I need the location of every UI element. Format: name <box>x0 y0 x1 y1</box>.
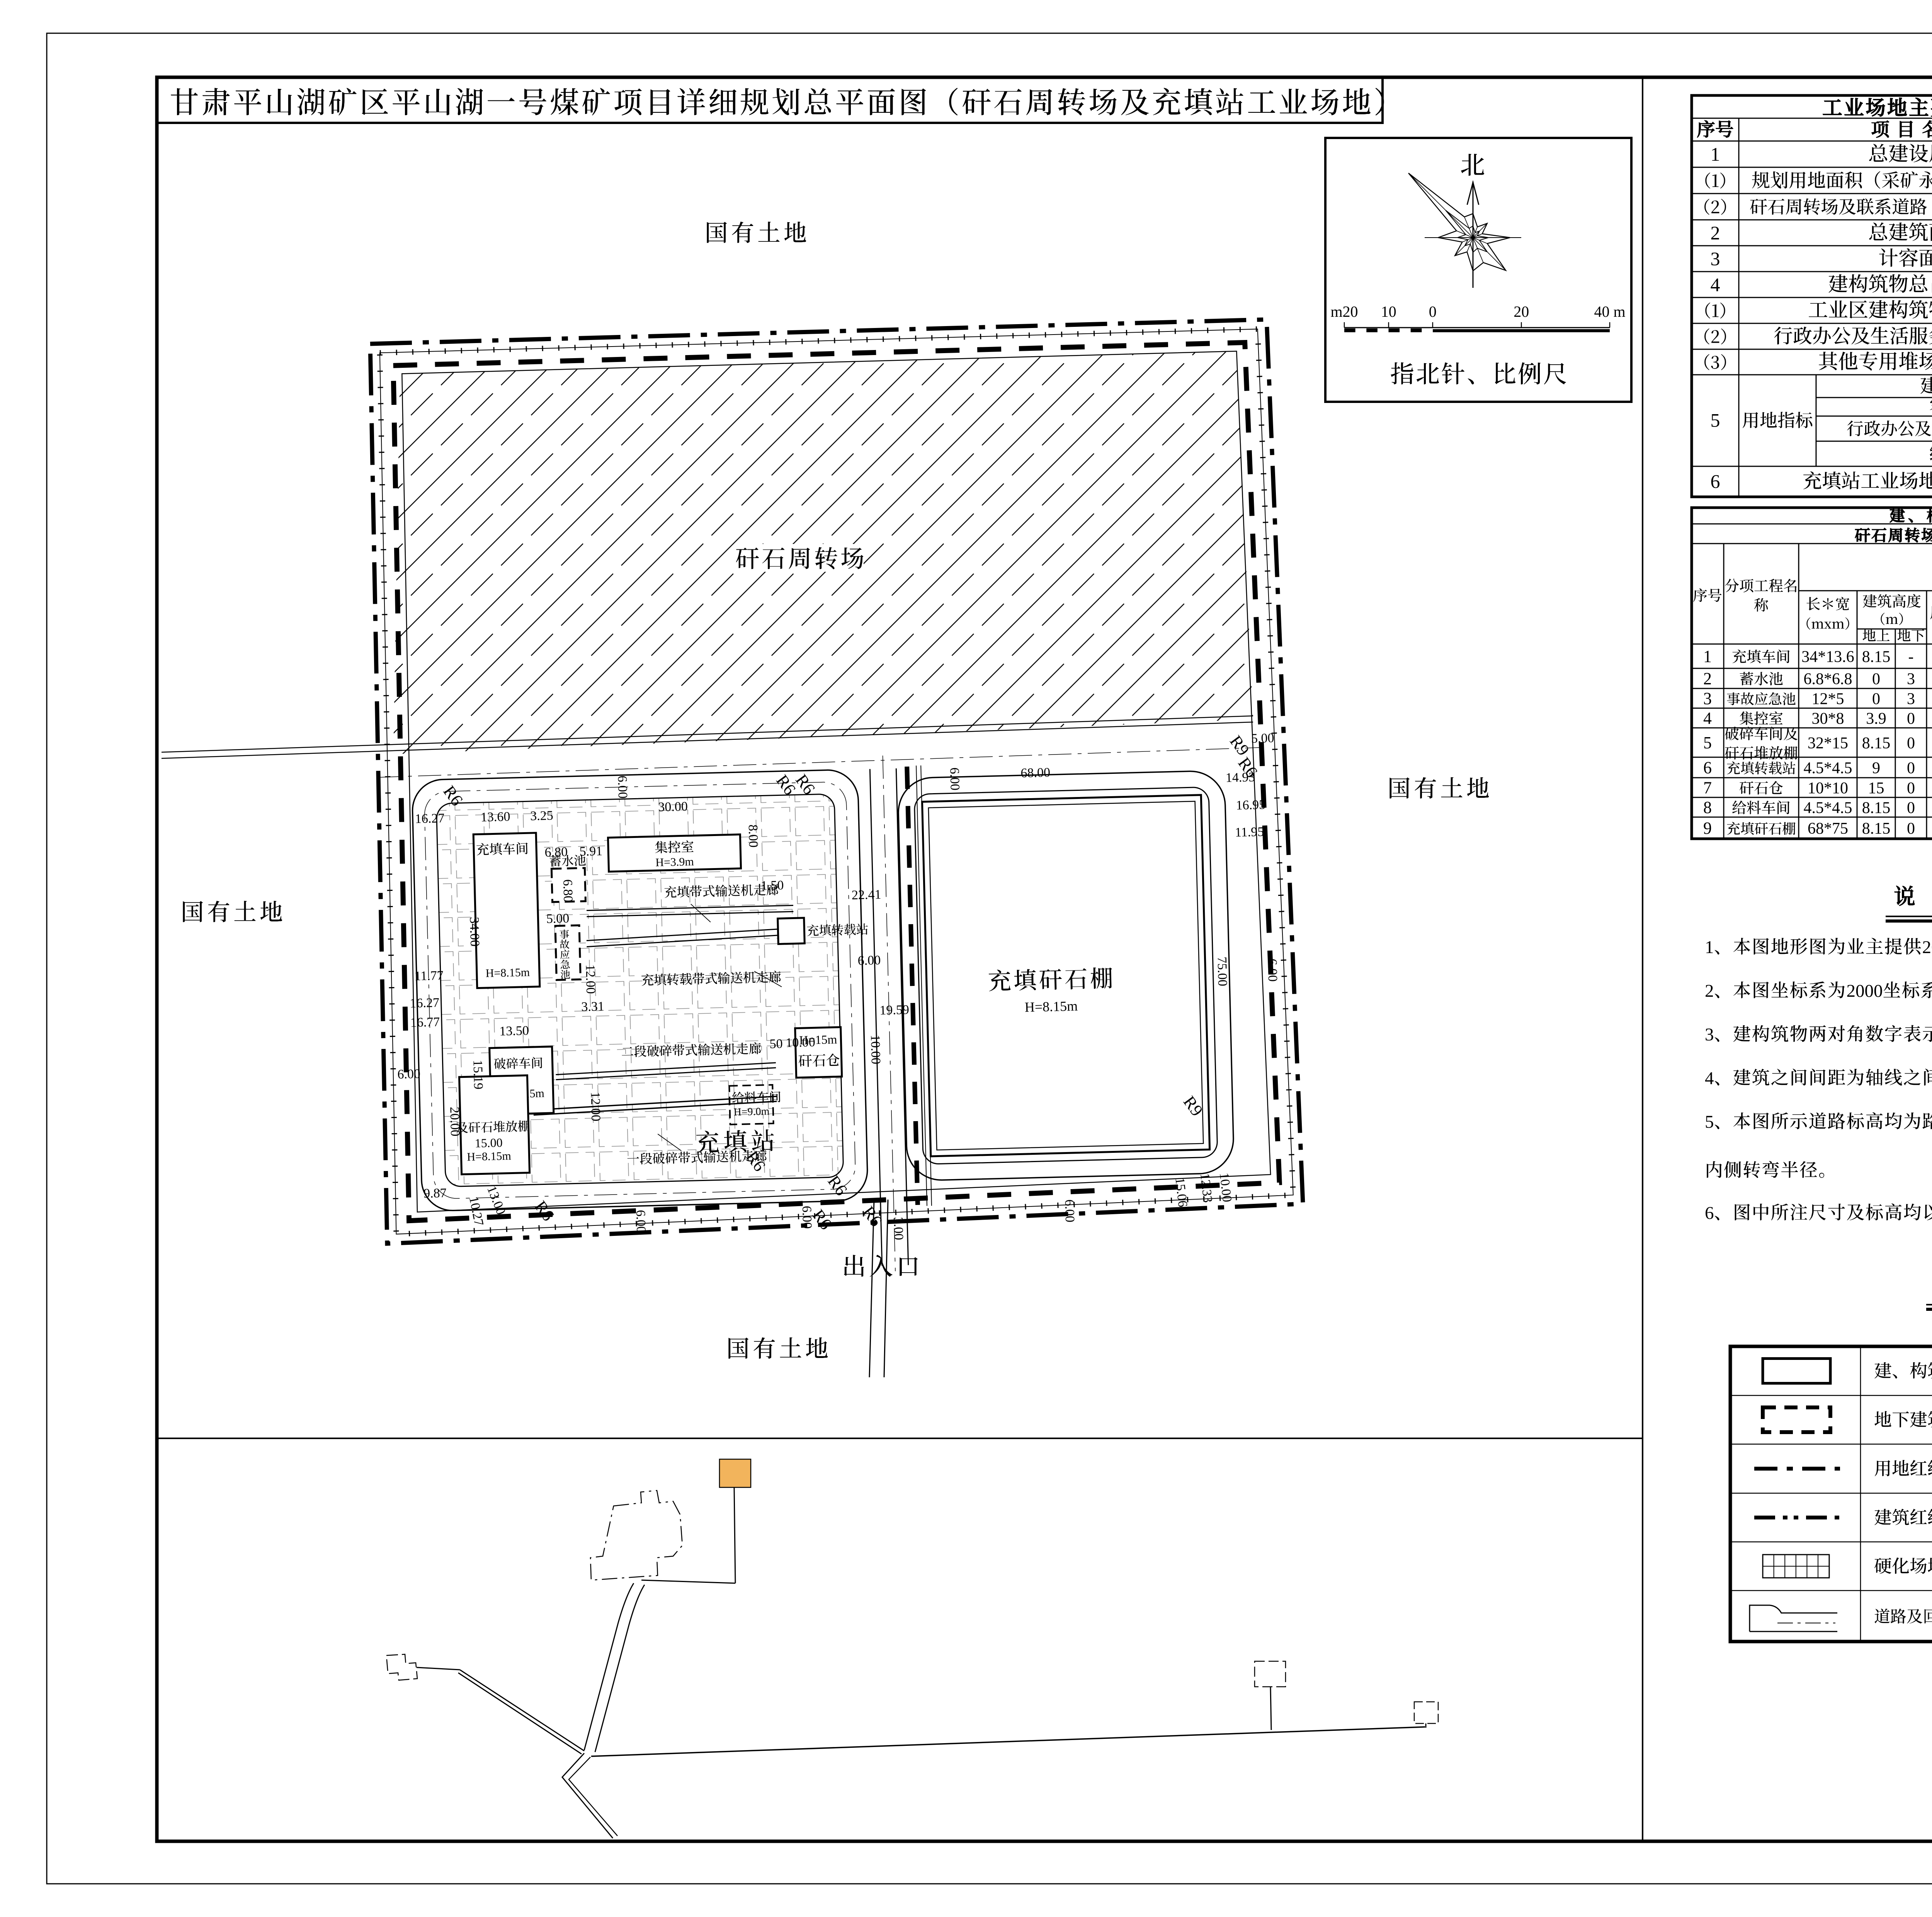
svg-text:7: 7 <box>1703 778 1712 797</box>
svg-text:0: 0 <box>1907 780 1915 797</box>
svg-text:12.00: 12.00 <box>588 1092 603 1122</box>
svg-text:6.00: 6.00 <box>947 767 962 790</box>
svg-text:16.95: 16.95 <box>1236 798 1265 813</box>
svg-text:8.15: 8.15 <box>1862 734 1891 752</box>
svg-text:13.60: 13.60 <box>480 809 510 824</box>
svg-text:6.00: 6.00 <box>633 1210 648 1233</box>
svg-text:3: 3 <box>1703 689 1712 708</box>
svg-text:1: 1 <box>1711 143 1720 165</box>
svg-text:2: 2 <box>1711 222 1720 244</box>
svg-text:2: 2 <box>1703 669 1712 688</box>
svg-text:0: 0 <box>1872 690 1880 708</box>
svg-text:m20: m20 <box>1330 303 1358 320</box>
svg-text:15.19: 15.19 <box>470 1060 485 1089</box>
svg-text:5: 5 <box>1711 410 1720 431</box>
svg-text:6.00: 6.00 <box>1062 1199 1077 1222</box>
svg-text:6.00: 6.00 <box>857 953 881 968</box>
svg-text:16.27: 16.27 <box>415 811 444 826</box>
svg-text:20.00: 20.00 <box>447 1106 462 1136</box>
svg-text:16.27: 16.27 <box>410 996 439 1011</box>
svg-text:2023: 2023 <box>1922 937 1932 957</box>
svg-text:40 m: 40 m <box>1594 303 1625 320</box>
svg-text:12*5: 12*5 <box>1812 690 1844 708</box>
svg-text:3.9: 3.9 <box>1866 710 1886 728</box>
svg-text:6.00: 6.00 <box>1265 958 1280 982</box>
svg-text:0: 0 <box>1907 760 1915 777</box>
svg-text:20: 20 <box>1514 303 1529 320</box>
svg-text:12.00: 12.00 <box>583 964 598 994</box>
svg-text:3: 3 <box>1705 1025 1714 1045</box>
svg-text:0: 0 <box>1907 799 1915 817</box>
svg-text:6.8*6.8: 6.8*6.8 <box>1804 670 1852 688</box>
svg-text:8: 8 <box>1703 798 1712 817</box>
svg-text:6.80: 6.80 <box>560 879 575 902</box>
svg-text:2: 2 <box>1705 981 1714 1001</box>
svg-text:68*75: 68*75 <box>1808 820 1848 838</box>
svg-text:10: 10 <box>1381 303 1396 320</box>
svg-text:0: 0 <box>1429 303 1437 320</box>
svg-text:5.91: 5.91 <box>579 844 602 859</box>
svg-text:50: 50 <box>769 1037 783 1051</box>
svg-text:2000: 2000 <box>1847 981 1883 1001</box>
svg-text:3.25: 3.25 <box>530 809 553 823</box>
svg-text:3: 3 <box>1907 670 1915 688</box>
svg-text:19.59: 19.59 <box>879 1003 909 1018</box>
svg-text:11.77: 11.77 <box>414 969 444 984</box>
svg-text:5.00: 5.00 <box>546 911 569 926</box>
svg-text:4.5*4.5: 4.5*4.5 <box>1804 799 1852 817</box>
svg-text:6.80: 6.80 <box>544 845 568 860</box>
svg-text:4: 4 <box>1705 1068 1714 1088</box>
svg-text:1: 1 <box>1703 647 1712 666</box>
svg-text:68.00: 68.00 <box>1020 765 1050 780</box>
svg-text:6: 6 <box>1703 758 1712 777</box>
svg-text:34*13.6: 34*13.6 <box>1801 648 1854 666</box>
svg-text:5: 5 <box>1705 1112 1714 1132</box>
svg-text:1: 1 <box>1705 937 1714 957</box>
svg-text:11.95: 11.95 <box>1235 825 1264 840</box>
svg-text:H=8.15m: H=8.15m <box>1024 998 1078 1015</box>
svg-text:H=3.9m: H=3.9m <box>655 855 694 869</box>
svg-text:4: 4 <box>1711 274 1720 296</box>
svg-text:16.77: 16.77 <box>410 1015 440 1030</box>
svg-text:6.00: 6.00 <box>615 775 630 799</box>
svg-text:1.50: 1.50 <box>760 878 784 893</box>
svg-text:H=9.0m: H=9.0m <box>733 1105 770 1118</box>
svg-text:0: 0 <box>1907 734 1915 752</box>
svg-text:75.00: 75.00 <box>1214 957 1230 986</box>
svg-text:10*10: 10*10 <box>1808 780 1848 797</box>
svg-text:15: 15 <box>1868 780 1884 797</box>
svg-text:8.15: 8.15 <box>1862 799 1891 817</box>
svg-text:8.15: 8.15 <box>1862 648 1891 666</box>
svg-text:3.31: 3.31 <box>581 999 604 1014</box>
svg-text:6: 6 <box>1711 471 1720 492</box>
svg-text:10.00: 10.00 <box>868 1035 883 1064</box>
svg-text:-: - <box>1908 648 1914 666</box>
svg-text:32*15: 32*15 <box>1808 734 1848 752</box>
svg-text:34.00: 34.00 <box>467 917 482 947</box>
svg-text:10.00: 10.00 <box>786 1035 815 1050</box>
svg-text:H=8.15m: H=8.15m <box>485 966 530 980</box>
svg-text:22.41: 22.41 <box>852 887 881 902</box>
svg-text:8.15: 8.15 <box>1862 820 1891 838</box>
svg-text:4: 4 <box>1703 709 1712 728</box>
svg-text:8.00: 8.00 <box>746 824 760 848</box>
svg-text:3: 3 <box>1711 248 1720 270</box>
svg-text:6.00: 6.00 <box>397 1067 420 1081</box>
svg-text:0: 0 <box>1907 710 1915 728</box>
svg-text:30.00: 30.00 <box>658 799 688 814</box>
svg-text:13.50: 13.50 <box>499 1023 529 1038</box>
svg-text:3.00: 3.00 <box>891 1217 906 1240</box>
svg-text:H=8.15m: H=8.15m <box>467 1150 511 1164</box>
svg-text:30*8: 30*8 <box>1812 710 1844 728</box>
svg-text:4.5*4.5: 4.5*4.5 <box>1804 760 1852 777</box>
svg-text:15.00: 15.00 <box>474 1135 503 1150</box>
svg-text:9.87: 9.87 <box>423 1186 447 1201</box>
svg-text:9: 9 <box>1703 819 1712 838</box>
svg-text:3: 3 <box>1907 690 1915 708</box>
svg-text:5: 5 <box>1703 733 1712 752</box>
svg-text:5.00: 5.00 <box>1251 731 1274 746</box>
svg-text:6: 6 <box>1705 1203 1714 1223</box>
svg-text:0: 0 <box>1907 820 1915 838</box>
svg-text:0: 0 <box>1872 670 1880 688</box>
svg-text:9: 9 <box>1872 760 1880 777</box>
